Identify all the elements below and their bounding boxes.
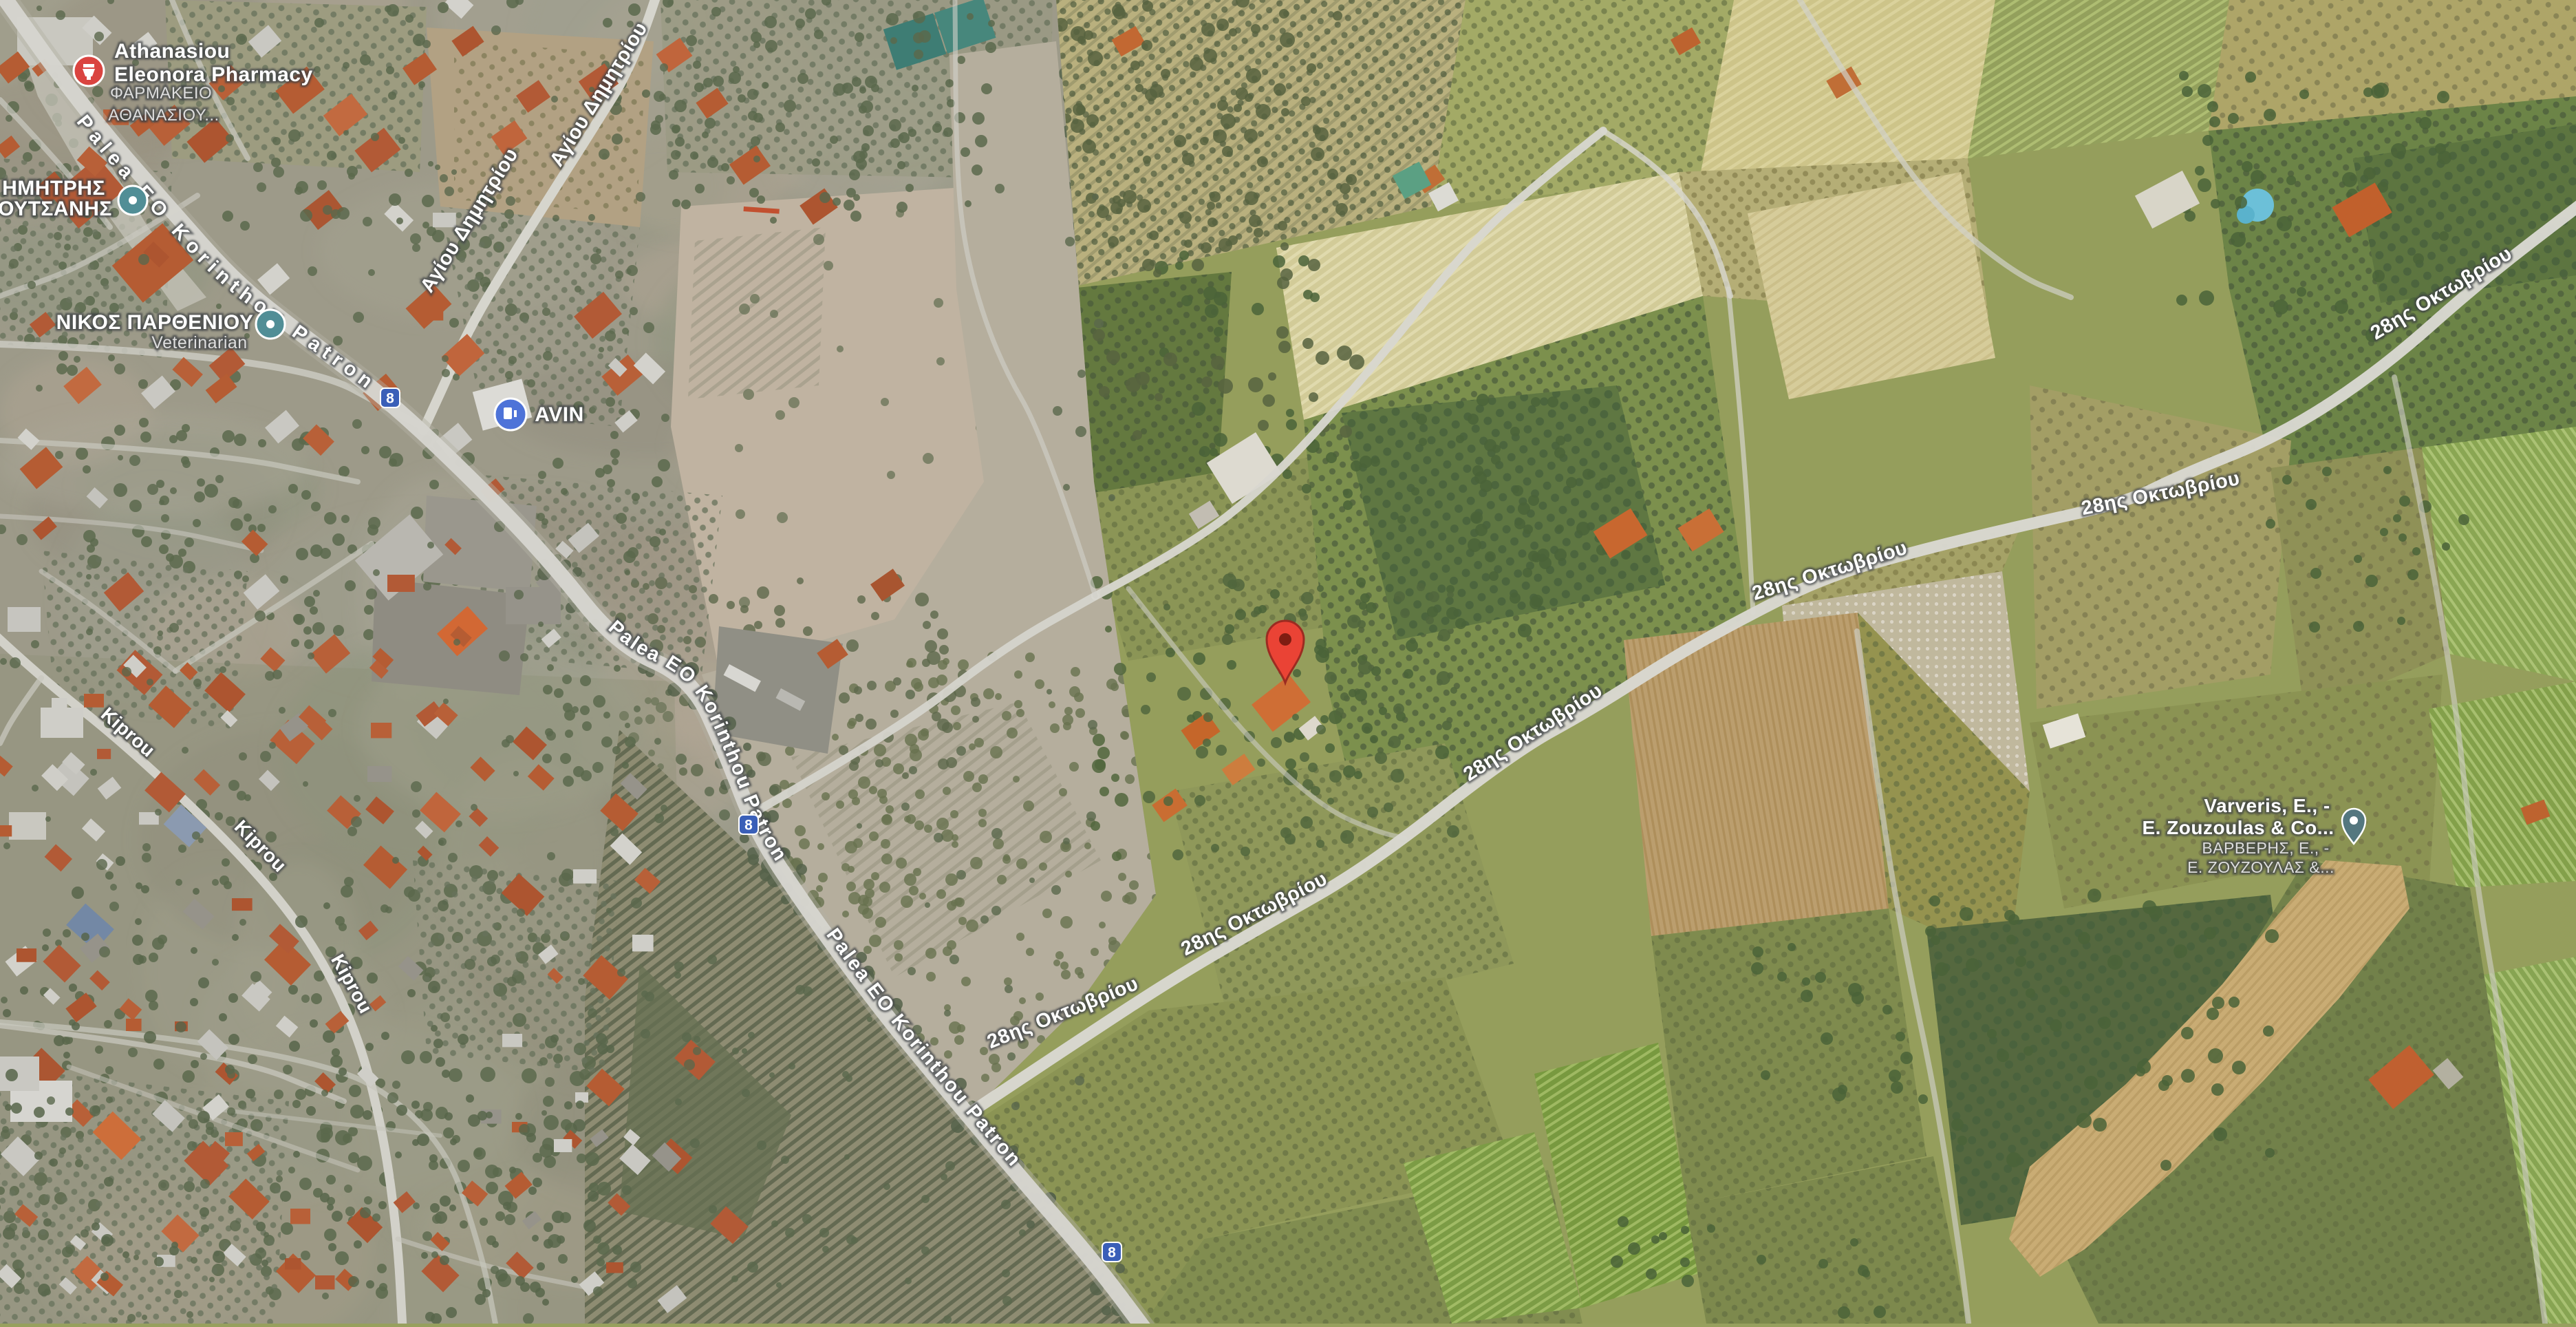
- svg-text:Eleonora Pharmacy: Eleonora Pharmacy: [114, 63, 313, 86]
- svg-text:Ε. ΖΟΥΖΟΥΛΑΣ &...: Ε. ΖΟΥΖΟΥΛΑΣ &...: [2187, 858, 2334, 876]
- svg-text:Varveris, E., -: Varveris, E., -: [2204, 795, 2330, 816]
- svg-text:ΑΘΑΝΑΣΙΟΥ...: ΑΘΑΝΑΣΙΟΥ...: [108, 106, 219, 125]
- svg-text:AVIN: AVIN: [535, 403, 583, 426]
- svg-text:ΒΑΡΒΕΡΗΣ, Ε., -: ΒΑΡΒΕΡΗΣ, Ε., -: [2202, 839, 2329, 857]
- svg-text:Athanasiou: Athanasiou: [114, 40, 230, 63]
- svg-text:ΟΥΤΣΑΝΗΣ: ΟΥΤΣΑΝΗΣ: [0, 198, 112, 220]
- svg-text:8: 8: [386, 391, 394, 407]
- svg-text:Veterinarian: Veterinarian: [151, 333, 247, 352]
- svg-text:ΝΙΚΟΣ ΠΑΡΘΕΝΙΟΥ: ΝΙΚΟΣ ΠΑΡΘΕΝΙΟΥ: [56, 311, 254, 334]
- svg-text:8: 8: [1108, 1245, 1116, 1261]
- svg-text:ΦΑΡΜΑΚΕΙΟ: ΦΑΡΜΑΚΕΙΟ: [110, 84, 212, 103]
- svg-text:E. Zouzoulas & Co...: E. Zouzoulas & Co...: [2142, 817, 2334, 838]
- svg-text:8: 8: [744, 818, 753, 834]
- svg-text:ΗΜΗΤΡΗΣ: ΗΜΗΤΡΗΣ: [2, 177, 105, 200]
